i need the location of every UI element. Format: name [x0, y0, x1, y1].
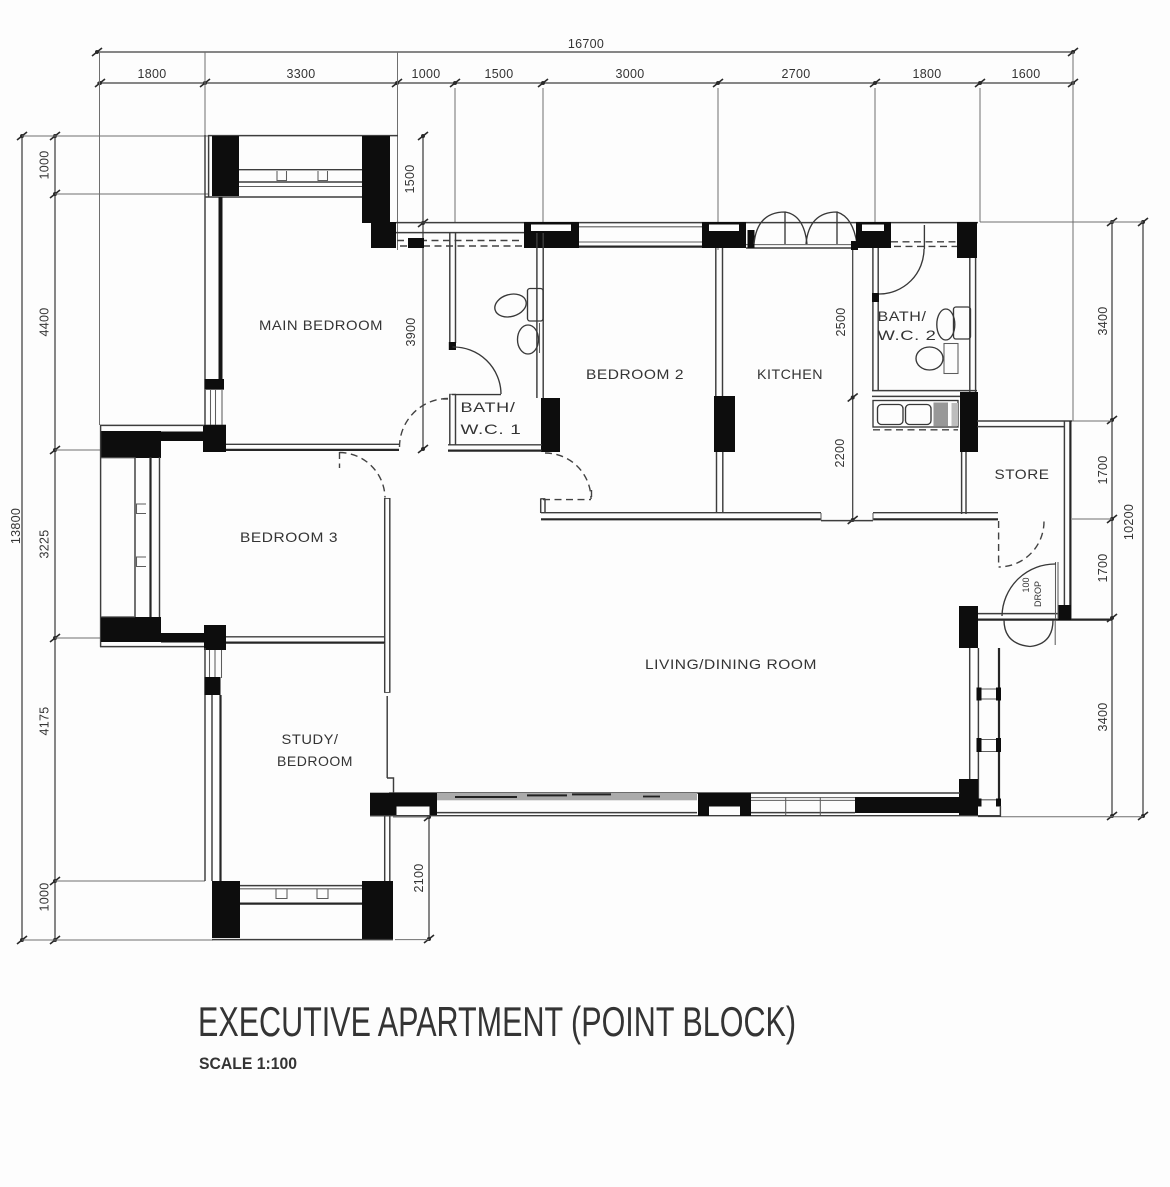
- svg-text:3400: 3400: [1096, 306, 1110, 335]
- svg-text:BATH/: BATH/: [461, 399, 516, 415]
- svg-text:1600: 1600: [1011, 67, 1040, 81]
- svg-text:2200: 2200: [833, 438, 847, 467]
- svg-text:1500: 1500: [403, 164, 417, 193]
- svg-text:2500: 2500: [834, 307, 848, 336]
- svg-text:16700: 16700: [568, 37, 604, 51]
- svg-text:BEDROOM 3: BEDROOM 3: [240, 529, 338, 545]
- svg-text:4175: 4175: [38, 706, 52, 735]
- svg-text:13800: 13800: [9, 508, 23, 544]
- svg-text:1800: 1800: [137, 67, 166, 81]
- svg-text:2700: 2700: [781, 67, 810, 81]
- svg-text:4400: 4400: [38, 307, 52, 336]
- svg-text:1800: 1800: [912, 67, 941, 81]
- svg-text:BEDROOM: BEDROOM: [277, 753, 353, 769]
- svg-text:3400: 3400: [1096, 702, 1110, 731]
- svg-text:STUDY/: STUDY/: [282, 731, 339, 747]
- svg-text:W.C. 2: W.C. 2: [878, 327, 937, 343]
- svg-text:1700: 1700: [1096, 553, 1110, 582]
- svg-text:1000: 1000: [38, 150, 52, 179]
- svg-text:STORE: STORE: [995, 466, 1050, 482]
- svg-text:10200: 10200: [1122, 504, 1136, 540]
- svg-text:3300: 3300: [286, 67, 315, 81]
- svg-text:100: 100: [1021, 577, 1031, 592]
- svg-text:3900: 3900: [404, 317, 418, 346]
- svg-text:MAIN BEDROOM: MAIN BEDROOM: [259, 317, 383, 333]
- svg-text:1000: 1000: [38, 882, 52, 911]
- svg-text:BATH/: BATH/: [878, 308, 927, 324]
- svg-text:LIVING/DINING ROOM: LIVING/DINING ROOM: [645, 656, 817, 672]
- svg-text:DROP: DROP: [1033, 581, 1043, 607]
- svg-text:KITCHEN: KITCHEN: [757, 366, 823, 382]
- svg-text:SCALE 1:100: SCALE 1:100: [199, 1055, 297, 1073]
- svg-text:2100: 2100: [412, 863, 426, 892]
- svg-text:W.C. 1: W.C. 1: [461, 421, 522, 437]
- svg-text:1000: 1000: [411, 67, 440, 81]
- svg-text:EXECUTIVE APARTMENT (POINT BLO: EXECUTIVE APARTMENT (POINT BLOCK): [198, 998, 796, 1045]
- svg-text:BEDROOM 2: BEDROOM 2: [586, 366, 684, 382]
- svg-text:3225: 3225: [38, 529, 52, 558]
- svg-text:1500: 1500: [484, 67, 513, 81]
- svg-text:3000: 3000: [615, 67, 644, 81]
- svg-text:1700: 1700: [1096, 455, 1110, 484]
